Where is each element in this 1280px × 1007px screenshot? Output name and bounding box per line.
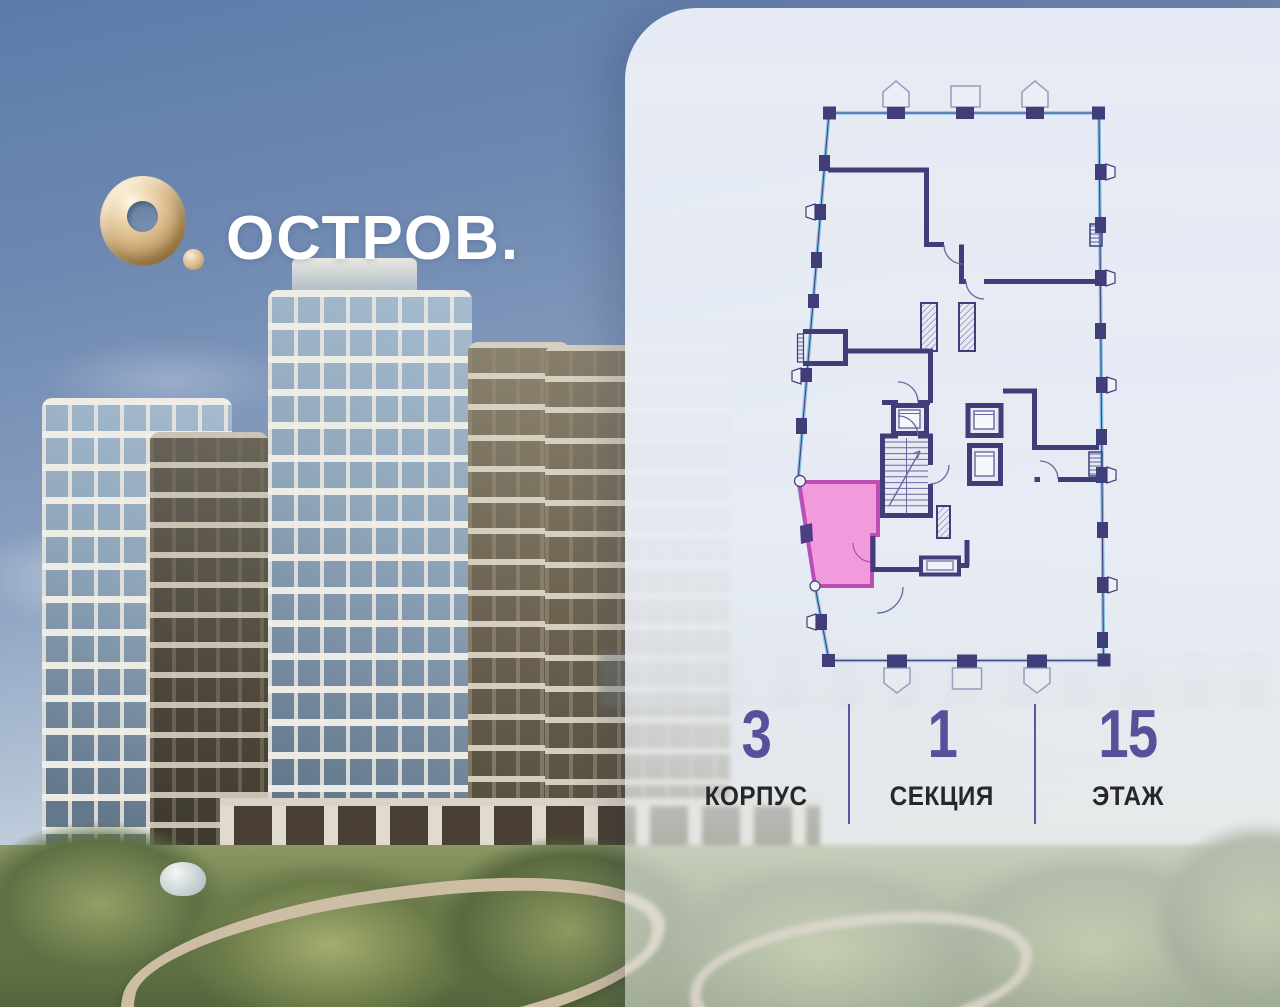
- staircase: [885, 438, 928, 514]
- window-sill: [927, 561, 953, 570]
- building-number: 3: [741, 700, 770, 769]
- brand-dot-icon: [183, 249, 204, 270]
- section-number: 1: [927, 700, 956, 769]
- brand-ring-icon: [100, 176, 186, 266]
- floor-plan: [780, 70, 1140, 710]
- floor-number: 15: [1099, 700, 1158, 769]
- page: ОСТРОВ.: [0, 0, 1280, 1007]
- unit-edge-pier: [800, 523, 813, 544]
- info-floor: 15 ЭТАЖ: [1044, 700, 1212, 840]
- unit-info-row: 3 КОРПУС 1 СЕКЦИЯ 15 ЭТАЖ: [672, 700, 1212, 840]
- info-divider: [848, 704, 850, 824]
- info-divider: [1034, 704, 1036, 824]
- section-label: СЕКЦИЯ: [890, 781, 994, 812]
- brand-logo-text: ОСТРОВ.: [226, 203, 520, 274]
- info-building: 3 КОРПУС: [672, 700, 840, 840]
- building-label: КОРПУС: [705, 781, 808, 812]
- playground-dome: [160, 862, 206, 896]
- balcony-outlines: [883, 81, 1050, 693]
- floor-label: ЭТАЖ: [1092, 781, 1164, 812]
- info-section: 1 СЕКЦИЯ: [858, 700, 1026, 840]
- tower-center: [268, 290, 472, 885]
